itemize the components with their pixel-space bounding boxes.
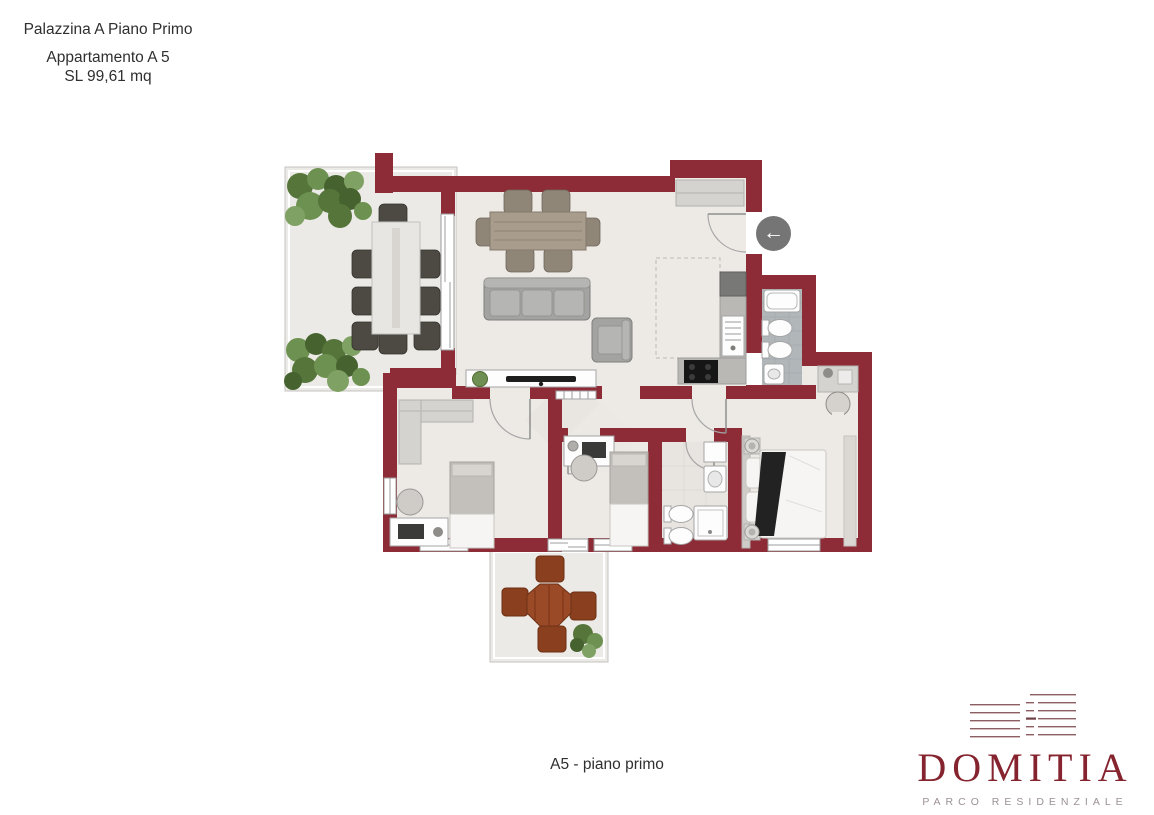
plant-pot <box>473 372 488 387</box>
brand-mark-icon <box>962 690 1088 742</box>
terrace-sliding-door <box>441 214 454 350</box>
bathroom-2-sink <box>704 466 726 492</box>
wardrobe <box>399 400 421 464</box>
bath-cabinet <box>704 442 726 462</box>
bedside-rug <box>844 436 856 546</box>
brand-tagline: PARCO RESIDENZIALE <box>900 796 1150 808</box>
desk-lamp <box>433 527 443 537</box>
desk-chair <box>397 489 423 515</box>
single-bed <box>610 452 648 546</box>
plan-caption: A5 - piano primo <box>500 756 714 774</box>
entrance-arrow-icon: ← <box>756 216 791 251</box>
building-title: Palazzina A Piano Primo <box>8 20 208 39</box>
terrace-plants-top <box>285 168 372 228</box>
apartment-title: Appartamento A 5 <box>8 48 208 67</box>
desk-chair <box>571 455 597 481</box>
tv-console <box>466 370 596 387</box>
laptop <box>398 524 424 539</box>
balcony <box>490 548 608 662</box>
terrace <box>284 167 457 392</box>
sofa <box>484 278 590 320</box>
brand-logo: DOMITIA PARCO RESIDENZIALE <box>900 690 1150 808</box>
desk-mug <box>568 441 578 451</box>
double-bed <box>742 436 826 548</box>
bathroom-1-door-opening <box>746 353 762 385</box>
radiator <box>556 391 596 399</box>
apartment-area: SL 99,61 mq <box>8 67 208 86</box>
armchair <box>592 318 632 362</box>
fridge <box>720 272 746 296</box>
tv <box>506 376 576 382</box>
plan-title-block: Palazzina A Piano Primo Appartamento A 5… <box>8 20 208 86</box>
bidet <box>664 528 693 545</box>
bathroom-1-sink <box>764 364 784 384</box>
bidet <box>762 342 792 359</box>
cooktop <box>684 360 718 383</box>
left-arrow-glyph: ← <box>763 222 784 243</box>
toilet <box>762 320 792 337</box>
single-bed <box>450 462 494 548</box>
toilet <box>664 506 693 523</box>
shower <box>694 506 727 540</box>
balcony-sliding-door <box>548 539 588 551</box>
brand-name: DOMITIA <box>900 744 1150 791</box>
